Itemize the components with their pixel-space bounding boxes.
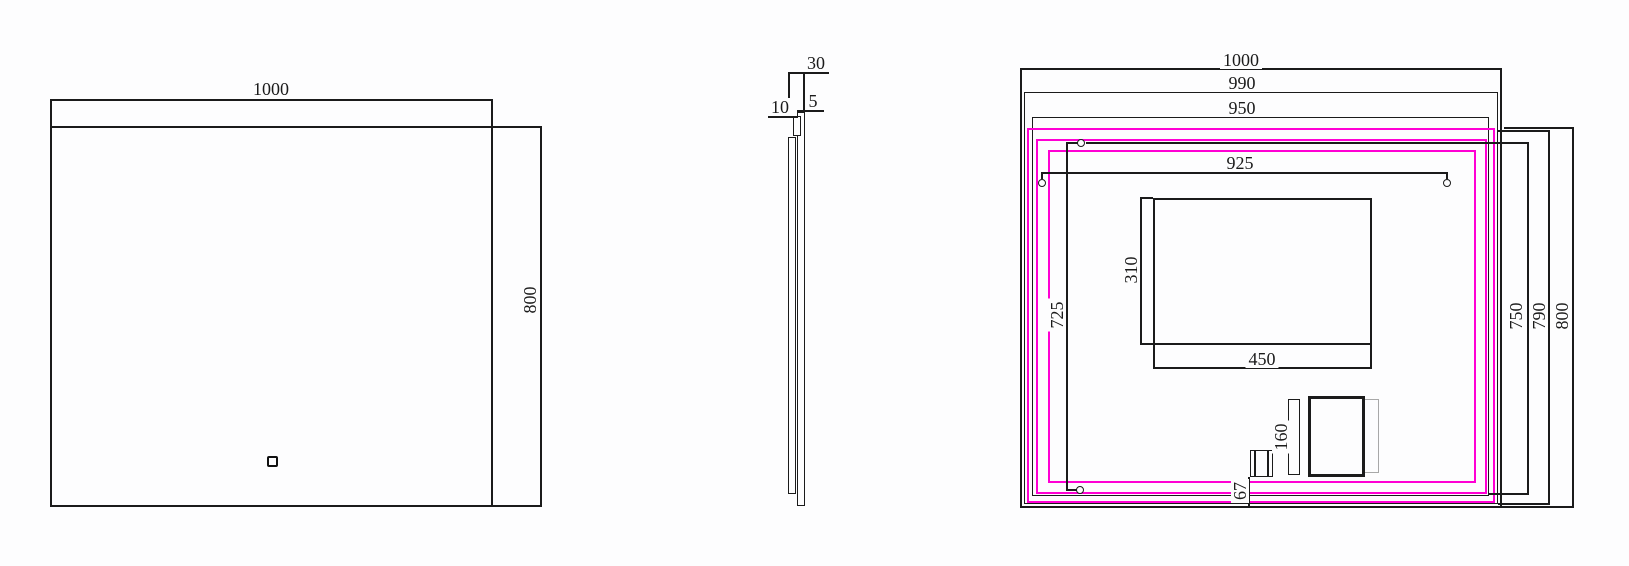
- hanger-spacing-dim-label: 925: [1224, 154, 1257, 172]
- back-frame-width-dim-label: 950: [1226, 99, 1259, 117]
- driver-box: [1308, 396, 1365, 477]
- frame-height-dim-label: 750: [1507, 300, 1525, 333]
- hanger-leader-left: [1041, 172, 1043, 179]
- switch-box-divider-left: [1254, 450, 1256, 477]
- mirror-height-ext-bottom: [1502, 506, 1574, 508]
- led-height-anchor-top: [1077, 139, 1085, 147]
- hanger-hole-left: [1038, 179, 1046, 187]
- panel-height-ext-bottom: [1498, 503, 1550, 505]
- demister-width-ext-left: [1153, 345, 1155, 369]
- demister-height-ext-top: [1140, 197, 1153, 199]
- demister-width-dim-label: 450: [1246, 350, 1279, 368]
- demister-pad: [1153, 198, 1372, 345]
- mirror-height-dim-label: 800: [1553, 300, 1571, 333]
- switch-box-divider-right: [1267, 450, 1269, 477]
- demister-width-ext-right: [1370, 345, 1372, 369]
- panel-height-dim-label: 790: [1530, 300, 1548, 333]
- frame-height-ext-bottom: [1489, 493, 1529, 495]
- led-height-dim-label: 725: [1048, 299, 1066, 332]
- switch-offset-dim-label: 67: [1231, 479, 1249, 503]
- demister-height-dim-label: 310: [1122, 254, 1140, 287]
- hanger-hole-right: [1443, 179, 1451, 187]
- back-width-dim-label: 1000: [1220, 51, 1262, 69]
- back-view: 1000 990 950 925 725 750 790 800 310 450…: [0, 0, 1629, 566]
- frame-height-ext-top: [1086, 142, 1529, 144]
- demister-height-ext-bottom: [1140, 343, 1153, 345]
- driver-length-dim-label: 160: [1272, 421, 1290, 454]
- mirror-height-dim-line-800: [1572, 127, 1574, 508]
- led-height-anchor-bottom: [1076, 486, 1084, 494]
- hanger-leader-right: [1446, 172, 1448, 179]
- mirror-technical-drawing: 1000 800 30 5 10: [0, 0, 1629, 566]
- mirror-height-ext-top: [1504, 127, 1574, 129]
- back-panel-width-dim-label: 990: [1226, 74, 1259, 92]
- panel-height-ext-top: [1498, 130, 1550, 132]
